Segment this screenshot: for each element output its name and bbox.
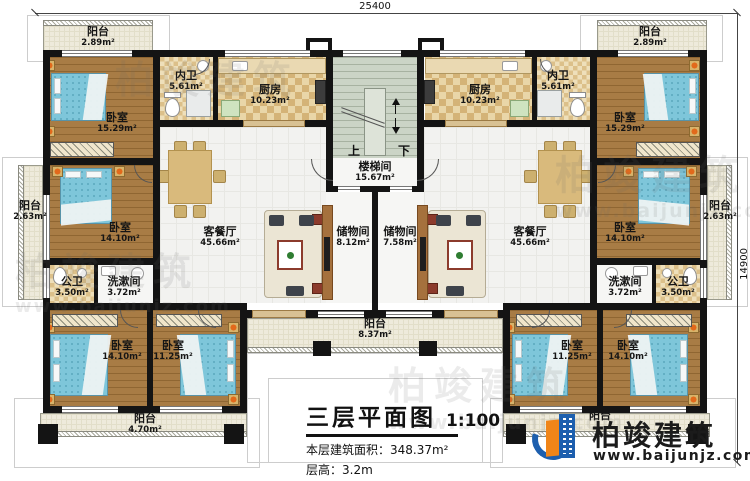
pillow <box>227 364 234 382</box>
room-area: 14.10m² <box>100 235 139 245</box>
stove <box>424 80 435 104</box>
dimension-line-right <box>737 13 738 463</box>
balcony-door-threshold <box>444 310 498 318</box>
pillow <box>680 364 687 382</box>
room-label-bedroom-br2: 卧室14.10m² <box>608 340 647 362</box>
column <box>38 424 58 444</box>
room-area: 8.12m² <box>336 239 370 249</box>
stair-up-arrow <box>392 98 400 105</box>
room-area: 14.10m² <box>102 353 141 363</box>
nightstand <box>689 126 700 137</box>
column <box>419 341 437 356</box>
pillow <box>689 98 696 114</box>
room-label-balcony-ml: 阳台2.63m² <box>13 200 47 222</box>
stair-arrow-stem <box>395 104 396 114</box>
sofa-cushion <box>436 215 451 226</box>
room-name: 卧室 <box>608 340 647 353</box>
room-area: 14.10m² <box>605 235 644 245</box>
room-name: 内卫 <box>541 70 575 83</box>
plan-scale: 1:100 <box>446 411 500 432</box>
window <box>440 50 525 57</box>
window <box>700 268 707 298</box>
window <box>62 406 118 413</box>
side-table <box>427 283 438 294</box>
room-label-bedroom-tr: 卧室15.29m² <box>605 112 644 134</box>
room-area: 4.70m² <box>128 426 162 436</box>
pillow <box>227 340 234 358</box>
nightstand <box>228 322 239 333</box>
window <box>338 186 360 192</box>
wall <box>532 57 537 120</box>
sofa-cushion <box>466 215 481 226</box>
pillow <box>515 340 522 358</box>
room-name: 厨房 <box>460 84 499 97</box>
pillow <box>65 171 81 178</box>
window <box>390 186 412 192</box>
room-area: 3.50m² <box>661 289 695 299</box>
fridge <box>510 100 529 117</box>
wall <box>652 265 656 303</box>
kitchen-pass-opening <box>445 120 507 127</box>
room-name: 客餐厅 <box>510 226 549 239</box>
room-name: 卧室 <box>153 340 192 353</box>
sofa-cushion <box>446 286 464 296</box>
watermark-text: 柏竣建筑 <box>115 58 299 104</box>
room-label-stairwell: 楼梯间15.67m² <box>355 161 394 183</box>
logo-blue-tower <box>559 414 575 458</box>
wardrobe <box>516 314 582 327</box>
wardrobe <box>626 314 692 327</box>
sofa-cushion <box>299 215 314 226</box>
pillow <box>86 171 102 178</box>
window <box>160 406 222 413</box>
watermark-text: 柏竣建筑 <box>15 250 231 296</box>
room-label-bedroom-tl: 卧室15.29m² <box>97 112 136 134</box>
table-plant <box>456 252 463 259</box>
pillow <box>680 340 687 358</box>
wardrobe <box>50 142 114 157</box>
balcony-door-threshold <box>252 310 306 318</box>
window <box>225 50 310 57</box>
plan-title: 三层平面图 <box>306 398 436 432</box>
sofa-cushion <box>286 286 304 296</box>
nightstand <box>689 60 700 71</box>
room-name: 楼梯间 <box>355 161 394 174</box>
room-label-living-l: 客餐厅45.66m² <box>200 226 239 248</box>
room-area: 14.10m² <box>608 353 647 363</box>
room-label-living-r: 客餐厅45.66m² <box>510 226 549 248</box>
toilet <box>570 98 585 117</box>
room-name: 储物间 <box>383 226 417 239</box>
column <box>313 341 331 356</box>
chair <box>213 170 226 183</box>
room-name: 公卫 <box>661 276 695 289</box>
dimension-right-value: 14900 <box>739 248 750 280</box>
watermark: 柏竣建筑www.baijunjz.com <box>555 152 750 223</box>
logo-website: www.baijunjz.com <box>593 448 750 464</box>
room-label-storage-l: 储物间8.12m² <box>336 226 370 248</box>
nightstand <box>688 394 699 405</box>
room-name: 卧室 <box>97 112 136 125</box>
window <box>343 50 401 57</box>
room-area: 5.61m² <box>541 83 575 93</box>
room-area: 2.89m² <box>81 39 115 49</box>
room-label-balcony-bl: 阳台4.70m² <box>128 413 162 435</box>
room-area: 10.23m² <box>460 97 499 107</box>
room-label-bedroom-mr: 卧室14.10m² <box>605 222 644 244</box>
room-area: 7.58m² <box>383 239 417 249</box>
room-area: 2.63m² <box>13 213 47 223</box>
room-area: 11.25m² <box>552 353 591 363</box>
room-area: 15.67m² <box>355 174 394 184</box>
wall <box>372 192 378 318</box>
room-area: 45.66m² <box>200 239 239 249</box>
dimension-line-top <box>35 13 737 14</box>
room-area: 15.29m² <box>97 125 136 135</box>
pillow <box>689 78 696 94</box>
room-area: 2.89m² <box>633 39 667 49</box>
table-plant <box>287 252 294 259</box>
tv <box>420 237 426 271</box>
tv <box>324 237 330 271</box>
watermark: 柏竣建筑 <box>115 58 299 104</box>
stair-down-label: 下 <box>398 142 410 159</box>
room-name: 阳台 <box>13 200 47 213</box>
room-name: 客餐厅 <box>200 226 239 239</box>
nightstand <box>228 394 239 405</box>
stair-up-label: 上 <box>348 142 360 159</box>
wall <box>503 303 707 310</box>
room-name: 洗漱间 <box>608 276 642 289</box>
room-name: 卧室 <box>100 222 139 235</box>
kitchen-sink <box>502 61 518 71</box>
room-label-bedroom-bl2: 卧室11.25m² <box>153 340 192 362</box>
room-label-bedroom-br1: 卧室11.25m² <box>552 340 591 362</box>
room-label-washroom-r: 洗漱间3.72m² <box>608 276 642 298</box>
floor-height-line: 层高：3.2m <box>306 461 500 478</box>
sofa-cushion <box>269 215 284 226</box>
shower <box>537 90 562 117</box>
room-area: 8.37m² <box>358 331 392 341</box>
nightstand <box>52 166 63 177</box>
room-label-bath-public-r: 公卫3.50m² <box>661 276 695 298</box>
balcony-railing <box>247 347 503 353</box>
room-name: 卧室 <box>102 340 141 353</box>
room-area: 11.25m² <box>153 353 192 363</box>
wall <box>43 158 160 165</box>
watermark-text: 柏竣建筑 <box>555 152 750 200</box>
room-label-kitchen-r: 厨房10.23m² <box>460 84 499 106</box>
kitchen-pass-opening <box>243 120 305 127</box>
nightstand <box>114 166 125 177</box>
pillow <box>53 364 60 382</box>
floor-area-line: 本层建筑面积：348.37m² <box>306 441 500 458</box>
title-underline <box>306 434 458 437</box>
room-label-balcony-bc: 阳台8.37m² <box>358 318 392 340</box>
wall <box>590 258 707 265</box>
room-name: 卧室 <box>605 222 644 235</box>
stove <box>315 80 326 104</box>
room-label-bedroom-ml: 卧室14.10m² <box>100 222 139 244</box>
column <box>224 424 244 444</box>
wall <box>147 310 153 406</box>
room-label-bedroom-bl1: 卧室14.10m² <box>102 340 141 362</box>
pillow <box>53 340 60 358</box>
room-name: 阳台 <box>128 413 162 426</box>
wall <box>590 50 597 165</box>
chair <box>174 205 187 218</box>
watermark-site: www.baijunjz.com <box>555 200 750 223</box>
room-label-storage-r: 储物间7.58m² <box>383 226 417 248</box>
room-label-balcony-tr: 阳台2.89m² <box>633 26 667 48</box>
pillow <box>54 98 61 114</box>
room-area: 3.72m² <box>608 289 642 299</box>
window <box>318 311 364 317</box>
room-area: 15.29m² <box>605 125 644 135</box>
room-label-bath-inner-r: 内卫5.61m² <box>541 70 575 92</box>
room-label-balcony-tl: 阳台2.89m² <box>81 26 115 48</box>
room-name: 储物间 <box>336 226 370 239</box>
logo-tower-windows <box>569 418 572 454</box>
company-logo: 柏竣建筑 www.baijunjz.com <box>530 408 740 470</box>
watermark-site: www.baijunjz.com <box>15 296 231 318</box>
window <box>62 50 132 57</box>
room-name: 阳台 <box>633 26 667 39</box>
window <box>618 50 688 57</box>
chair <box>524 170 537 183</box>
room-name: 阳台 <box>358 318 392 331</box>
window <box>386 311 432 317</box>
chair <box>193 205 206 218</box>
stair-down-arrow <box>392 127 400 134</box>
room-name: 阳台 <box>81 26 115 39</box>
pillow <box>54 78 61 94</box>
room-name: 卧室 <box>605 112 644 125</box>
dining-table <box>168 150 212 204</box>
logo-tower-windows <box>563 418 566 454</box>
logo-building-icon <box>530 410 586 466</box>
watermark: 柏竣建筑www.baijunjz.com <box>15 250 231 317</box>
title-block: 三层平面图 1:100 本层建筑面积：348.37m² 层高：3.2m <box>306 398 500 478</box>
title-row: 三层平面图 1:100 <box>306 398 500 432</box>
wall <box>240 310 247 406</box>
room-name: 卧室 <box>552 340 591 353</box>
room-area: 45.66m² <box>510 239 549 249</box>
dimension-top-value: 25400 <box>359 1 391 12</box>
floor-plan-canvas: 阳台2.89m² 卧室15.29m² 内卫5.61m² 厨房10.23m² 阳台… <box>0 0 750 481</box>
